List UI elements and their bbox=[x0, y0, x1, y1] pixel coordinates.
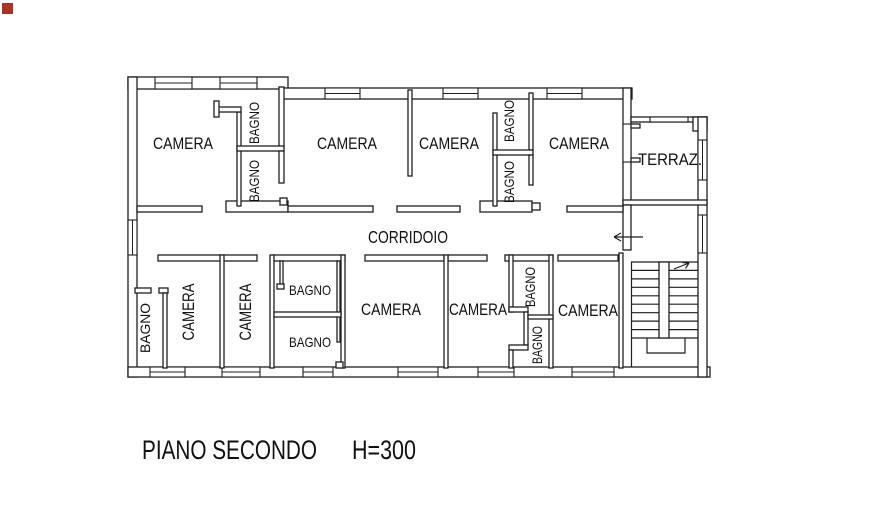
room-label-corridor: CORRIDOIO bbox=[368, 227, 448, 247]
room-label-bagno-bottom-mid-upper: BAGNO bbox=[289, 282, 331, 298]
height-note: H=300 bbox=[352, 435, 416, 465]
room-label-bagno-top-1b: BAGNO bbox=[246, 160, 262, 202]
room-label-camera-bottom-1: CAMERA bbox=[179, 283, 198, 341]
room-label-bagno-bottom-left: BAGNO bbox=[137, 303, 153, 353]
room-label-camera-bottom-3: CAMERA bbox=[361, 300, 422, 319]
floor-title: PIANO SECONDO bbox=[142, 435, 317, 465]
stair-up-arrow bbox=[674, 263, 689, 270]
room-label-camera-top-2: CAMERA bbox=[317, 134, 378, 153]
room-label-bagno-top-1a: BAGNO bbox=[246, 102, 262, 144]
room-label-camera-top-4: CAMERA bbox=[549, 134, 610, 153]
room-label-camera-top-1: CAMERA bbox=[153, 134, 214, 153]
staircase bbox=[631, 262, 698, 367]
room-label-camera-top-3: CAMERA bbox=[419, 134, 480, 153]
room-label-camera-bottom-4: CAMERA bbox=[449, 300, 508, 319]
room-label-camera-bottom-2: CAMERA bbox=[236, 283, 255, 341]
room-label-bagno-top-2b: BAGNO bbox=[501, 161, 517, 203]
room-label-bagno-top-2a: BAGNO bbox=[501, 100, 517, 142]
floor-plan-page: CAMERA BAGNO BAGNO CAMERA CAMERA BAGNO B… bbox=[0, 0, 880, 506]
room-label-camera-bottom-5: CAMERA bbox=[558, 301, 619, 320]
room-label-terrace: TERRAZ. bbox=[638, 150, 702, 169]
floor-plan-drawing: CAMERA BAGNO BAGNO CAMERA CAMERA BAGNO B… bbox=[0, 0, 880, 506]
room-label-bagno-bottom-right-upper: BAGNO bbox=[522, 267, 538, 307]
caption: PIANO SECONDO H=300 bbox=[142, 435, 416, 465]
room-label-bagno-bottom-right-lower: BAGNO bbox=[529, 326, 545, 364]
room-label-bagno-bottom-mid-lower: BAGNO bbox=[289, 334, 331, 350]
